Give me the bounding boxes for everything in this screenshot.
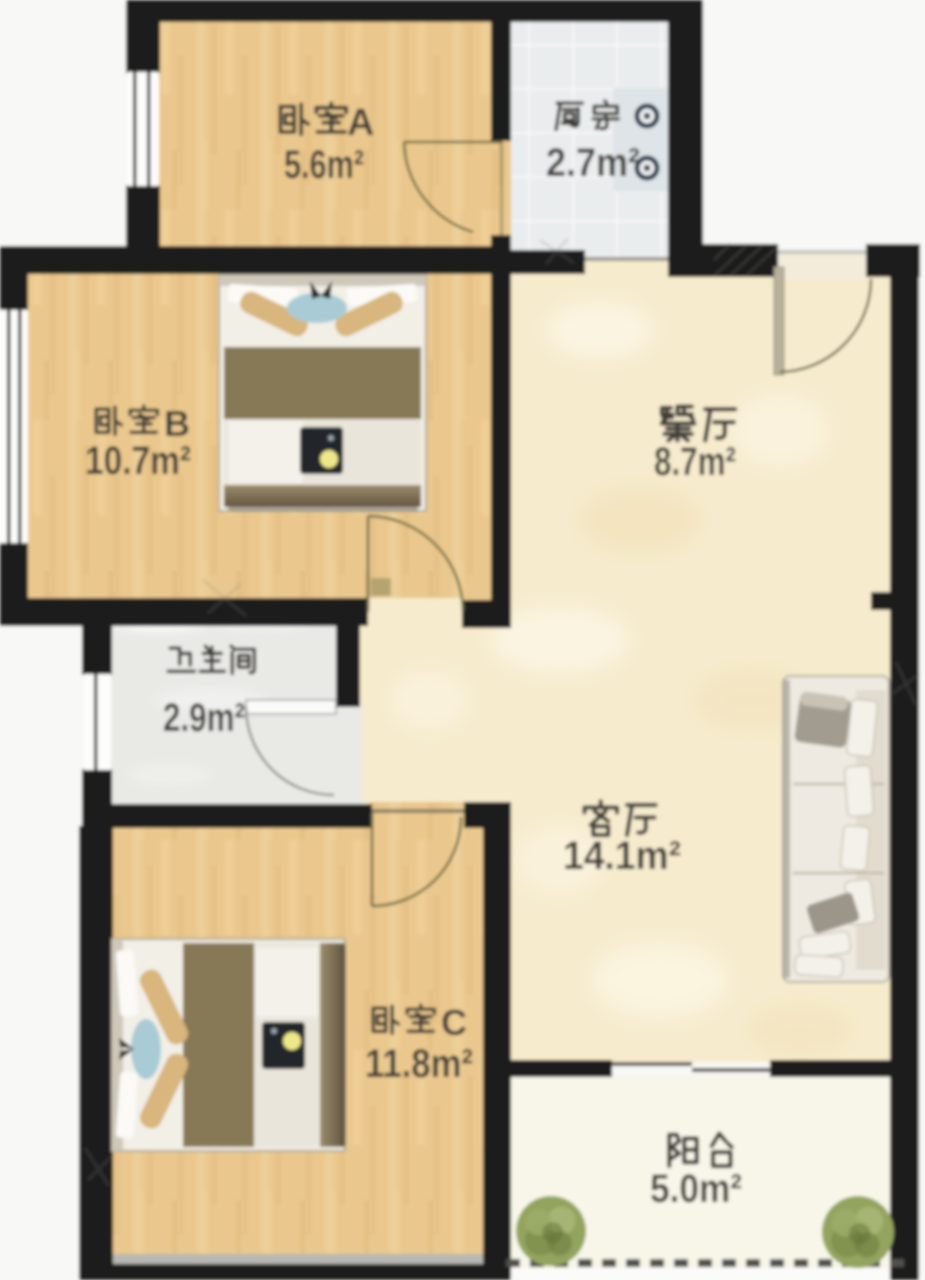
svg-text:2.7m²: 2.7m² xyxy=(546,141,640,185)
svg-text:A: A xyxy=(347,102,374,144)
svg-text:14.1m²: 14.1m² xyxy=(563,834,681,878)
svg-text:5.0m²: 5.0m² xyxy=(650,1167,742,1211)
svg-text:8.7m²: 8.7m² xyxy=(654,440,736,484)
svg-text:B: B xyxy=(164,403,190,444)
svg-text:2.9m²: 2.9m² xyxy=(163,696,245,740)
svg-text:11.8m²: 11.8m² xyxy=(365,1042,473,1086)
svg-text:C: C xyxy=(441,1002,467,1043)
svg-text:10.7m²: 10.7m² xyxy=(85,439,191,483)
svg-text:5.6m²: 5.6m² xyxy=(284,143,364,187)
